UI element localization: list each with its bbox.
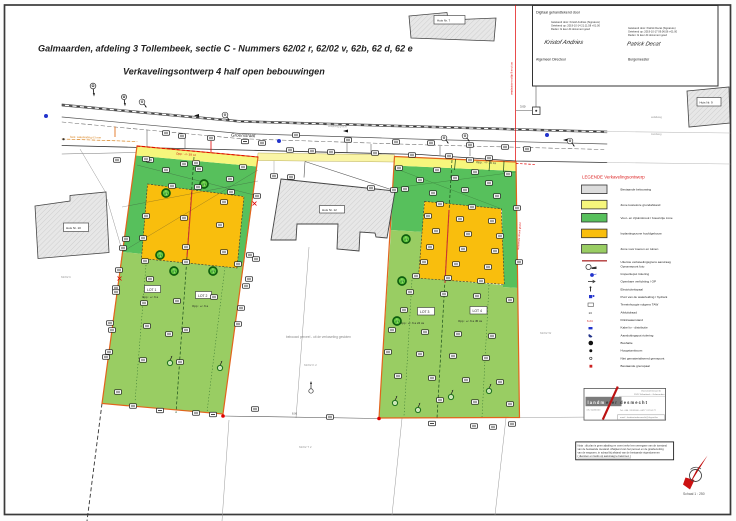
- svg-text:62/02 W: 62/02 W: [540, 331, 551, 335]
- svg-text:Nota : dit plan is geen afpali: Nota : dit plan is geen afpaling en vorm…: [578, 443, 668, 447]
- svg-text:Schaal 1 : 250: Schaal 1 : 250: [683, 492, 705, 496]
- svg-text:Patrick Decat: Patrick Decat: [626, 42, 661, 48]
- svg-text:LEGENDE Verkavelingsontwerp: LEGENDE Verkavelingsontwerp: [582, 175, 645, 180]
- svg-text:Bestaande bebouwing: Bestaande bebouwing: [621, 188, 652, 192]
- svg-text:Niet gematerialiseerd grenspun: Niet gematerialiseerd grenspunt: [621, 356, 665, 360]
- svg-text:zandweg: zandweg: [651, 132, 662, 136]
- svg-text:asfaltweg gracht: asfaltweg gracht: [328, 124, 347, 128]
- svg-text:Huis Nr. 12: Huis Nr. 12: [322, 208, 337, 212]
- svg-text:1570 Tollembeek - Galmaarden: 1570 Tollembeek - Galmaarden: [634, 393, 665, 396]
- svg-text:( diensten en loods op aanvraa: ( diensten en loods op aanvraag te bekom…: [578, 454, 631, 458]
- svg-text:Inplantingszone hoofdgebouw: Inplantingszone hoofdgebouw: [621, 232, 663, 236]
- svg-text:13: 13: [589, 311, 593, 315]
- svg-text:Getekend door: Kristof Andries: Getekend door: Kristof Andries (Signatur…: [551, 20, 600, 24]
- svg-text:Reden: Ik keur dit document go: Reden: Ik keur dit document goed: [551, 27, 590, 31]
- svg-text:Voor- en zijtuinstrook / bouwv: Voor- en zijtuinstrook / bouwvrije zone: [621, 216, 673, 220]
- svg-text:bebouwd perceel - uit de verka: bebouwd perceel - uit de verkaveling ges…: [286, 335, 351, 339]
- svg-text:Bestaande grenspaal: Bestaande grenspaal: [621, 364, 651, 368]
- svg-text:erk. landmeter: erk. landmeter: [587, 409, 601, 412]
- svg-text:verplaatste rooilijn 8 m uit a: verplaatste rooilijn 8 m uit as: [510, 61, 514, 95]
- svg-text:Afsluitdraad: Afsluitdraad: [621, 310, 638, 314]
- svg-text:Algemeen Directeur: Algemeen Directeur: [536, 58, 567, 62]
- svg-text:Vooruitzichtstraat 1b: Vooruitzichtstraat 1b: [641, 390, 662, 393]
- svg-text:best. waterleiding 63 mm: best. waterleiding 63 mm: [70, 135, 102, 140]
- svg-text:Terreinhoogte volgens TAW: Terreinhoogte volgens TAW: [621, 303, 659, 307]
- svg-text:Groenstraat: Groenstraat: [231, 132, 256, 138]
- svg-text:van de bestaande toestand. Afw: van de bestaande toestand. Afwijkend van…: [578, 447, 665, 451]
- svg-text:Opp : +/- 6 a 45 ca: Opp : +/- 6 a 45 ca: [458, 319, 482, 323]
- svg-text:Inspectieput riolering: Inspectieput riolering: [621, 272, 650, 276]
- svg-text:Huis Nr. 9: Huis Nr. 9: [700, 101, 714, 105]
- svg-text:62/02 T 2: 62/02 T 2: [299, 445, 312, 449]
- svg-text:LOT 1: LOT 1: [147, 288, 156, 292]
- svg-text:asfaltweg: asfaltweg: [651, 115, 663, 119]
- svg-text:Uiterste verkavelingsgrens aan: Uiterste verkavelingsgrens aanvraag: [621, 260, 671, 264]
- svg-text:Opnamepunt foto: Opnamepunt foto: [621, 264, 645, 268]
- svg-text:Kristof Andries: Kristof Andries: [544, 39, 584, 46]
- svg-text:Zone kosteloze grondafstand: Zone kosteloze grondafstand: [621, 203, 661, 207]
- svg-text:Aansluitingsput riolering: Aansluitingsput riolering: [621, 333, 654, 337]
- svg-text:LOT 4: LOT 4: [473, 309, 482, 313]
- svg-text:Getekend op: 2019-10-17 09:06:: Getekend op: 2019-10-17 09:06:56 +01:00: [628, 30, 678, 34]
- svg-text:Huis Nr. 10: Huis Nr. 10: [66, 226, 81, 230]
- svg-text:Electriciteitspaal: Electriciteitspaal: [621, 287, 644, 291]
- svg-text:Reden: Ik keur dit document go: Reden: Ik keur dit document goed: [628, 33, 667, 37]
- svg-text:Opp : +/- 6 a: Opp : +/- 6 a: [192, 304, 209, 308]
- svg-text:Galmaarden, afdeling 3 Tollem: Galmaarden, afdeling 3 Tollembeek, secti…: [38, 44, 413, 54]
- svg-text:Opp : +/- 6 a: Opp : +/- 6 a: [142, 295, 159, 299]
- svg-text:Burgemeester: Burgemeester: [628, 58, 650, 62]
- svg-text:6.24: 6.24: [587, 319, 593, 323]
- svg-text:Huis Nr. 7: Huis Nr. 7: [437, 19, 451, 23]
- svg-text:Tel : 054 / 33 83 46 - 0477: Tel : 054 / 33 83 46 - 0477 / 37 24 77: [620, 410, 657, 412]
- svg-text:Getekend door: Patrick Decat (: Getekend door: Patrick Decat (Signature): [628, 26, 676, 30]
- svg-text:62/02 K 2: 62/02 K 2: [304, 363, 317, 367]
- svg-text:Openbare verlichting / OP: Openbare verlichting / OP: [621, 280, 657, 284]
- svg-text:Getekend op: 2019-10-14 21:11:: Getekend op: 2019-10-14 21:11:58 +01:00: [551, 24, 600, 28]
- svg-text:van de wegvorm, in schaal bij: van de wegvorm, in schaal bij afstand va…: [578, 450, 661, 454]
- svg-text:email : landmeterdesmecht@skyn: email : landmeterdesmecht@skynet.be: [620, 416, 659, 419]
- svg-text:Hoogstamboom: Hoogstamboom: [621, 349, 643, 353]
- svg-text:Bushalte: Bushalte: [621, 341, 633, 345]
- svg-text:LOT 3: LOT 3: [420, 310, 429, 314]
- svg-text:Drinkwaterstand: Drinkwaterstand: [621, 318, 644, 322]
- svg-text:landm: landm: [588, 400, 606, 405]
- svg-text:Digitaal gehandtekend door: Digitaal gehandtekend door: [536, 11, 581, 15]
- svg-text:3.00: 3.00: [520, 105, 526, 109]
- svg-text:Kabel tv - distributie: Kabel tv - distributie: [621, 326, 648, 330]
- svg-text:Opp : +/- 6 a 24 ca: Opp : +/- 6 a 24 ca: [400, 321, 424, 325]
- svg-text:62/02 b: 62/02 b: [61, 275, 71, 279]
- svg-text:Verkavelingsontwerp 4 half ope: Verkavelingsontwerp 4 half open bebouwin…: [123, 67, 325, 77]
- svg-text:Zone voor koeren en tuinen: Zone voor koeren en tuinen: [621, 247, 659, 251]
- svg-text:8.00: 8.00: [292, 412, 298, 416]
- svg-text:Punt van de waterleiding / hyd: Punt van de waterleiding / hydrant: [621, 295, 668, 299]
- svg-text:LOT 2: LOT 2: [198, 294, 207, 298]
